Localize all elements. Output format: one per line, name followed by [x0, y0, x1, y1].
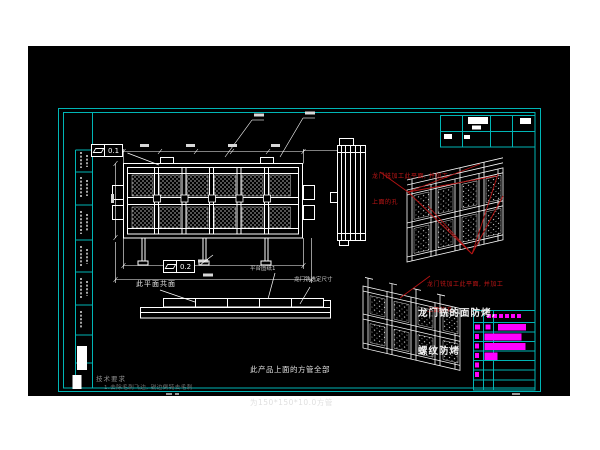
dimension-lines [114, 118, 338, 283]
elevation-view [141, 299, 331, 319]
coplanar-label: 此平面共面 [136, 279, 176, 289]
red-note-top-line2: 上面的孔 [372, 199, 448, 208]
red-note-top: 龙门铣加工此平面, 并加工 上面的孔 [372, 156, 448, 226]
gdt-frame-top: 0.1 [91, 144, 123, 157]
corner-table-text-blocks [444, 117, 531, 139]
bake-note-line2: 螺纹防烤 [418, 346, 496, 359]
gantry-size-label: 龙门铣选定尺寸 [294, 277, 333, 285]
flatness-icon [164, 261, 177, 272]
main-top-view-mesh-panels [132, 175, 291, 228]
flatness-icon [92, 145, 105, 156]
page-background: { "app": {"type": "cad-drawing-viewport"… [0, 0, 600, 450]
gdt-mid-value: 0.2 [177, 263, 194, 271]
platform-label: 平台图纸1 [250, 266, 276, 274]
tech-requirements-item: 1.去除毛刺飞边, 锐边倒钝去毛刺 [104, 385, 193, 393]
cad-canvas[interactable]: 0.1 0.2 龙门铣加工此平面, 并加工 上面的孔 龙门铣加工此平面, 并加工… [28, 46, 570, 396]
tube-note: 此产品上面的方管全部 为150*150*10.0方管 [250, 341, 333, 431]
tube-note-line1: 此产品上面的方管全部 [250, 364, 333, 375]
bake-note-line1: 龙门铣的面防烤, [418, 308, 496, 321]
binding-strip-blocks [73, 346, 88, 389]
bake-note: 龙门铣的面防烤, 螺纹防烤 [418, 282, 496, 385]
red-note-top-line1: 龙门铣加工此平面, 并加工 [372, 173, 448, 182]
side-view [331, 139, 366, 246]
tube-note-line2: 为150*150*10.0方管 [250, 397, 333, 408]
gdt-frame-mid: 0.2 [163, 260, 195, 273]
tech-requirements-title: 技术要求 [96, 375, 126, 384]
footer-marks [166, 393, 520, 395]
gdt-top-value: 0.1 [105, 147, 122, 155]
